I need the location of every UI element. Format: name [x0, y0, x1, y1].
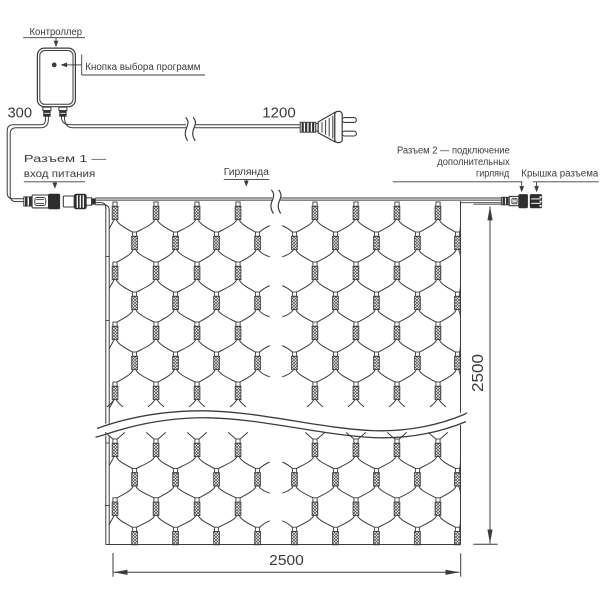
- svg-text:Разъем 2 — подключение: Разъем 2 — подключение: [397, 145, 510, 156]
- svg-text:Гирлянда: Гирлянда: [224, 167, 269, 178]
- svg-text:2500: 2500: [470, 354, 487, 392]
- svg-text:1200: 1200: [262, 105, 296, 122]
- svg-text:Кнопка выбора программ: Кнопка выбора программ: [85, 61, 200, 73]
- svg-text:вход питания: вход питания: [24, 169, 96, 180]
- svg-text:Разъем 1 —: Разъем 1 —: [24, 154, 107, 165]
- svg-text:300: 300: [8, 105, 33, 122]
- svg-text:дополнительных: дополнительных: [437, 157, 509, 168]
- svg-text:гирлянд: гирлянд: [476, 169, 509, 180]
- svg-text:2500: 2500: [269, 552, 304, 569]
- svg-text:Крышка разъема: Крышка разъема: [521, 169, 598, 180]
- svg-text:Контроллер: Контроллер: [30, 27, 83, 38]
